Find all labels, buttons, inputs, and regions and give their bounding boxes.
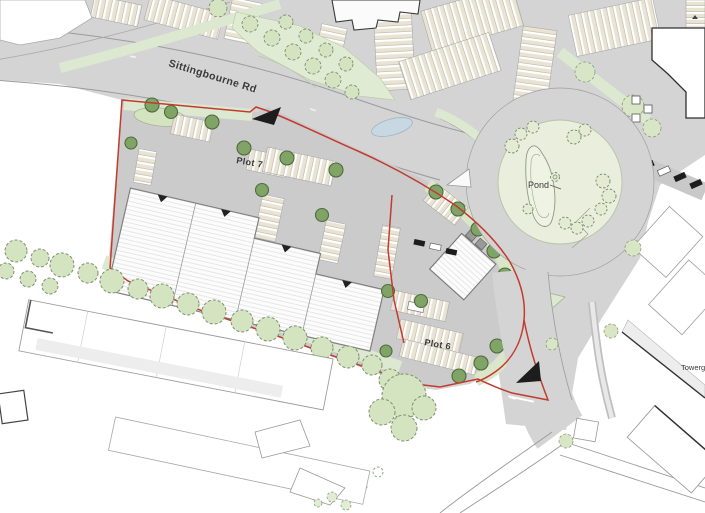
- tree-icon: [474, 356, 488, 370]
- tree-icon: [314, 499, 322, 507]
- tree-icon: [567, 130, 581, 144]
- tree-icon: [575, 62, 595, 82]
- tree-icon: [285, 44, 301, 60]
- pale-band: [622, 320, 705, 398]
- tree-icon: [604, 324, 618, 338]
- tree-icon: [20, 271, 36, 287]
- tree-icon: [329, 163, 343, 177]
- tree-icon: [369, 399, 395, 425]
- tree-icon: [559, 217, 571, 229]
- tree-icon: [391, 415, 417, 441]
- tree-icon: [523, 204, 533, 214]
- tree-icon: [237, 141, 251, 155]
- tree-icon: [515, 128, 527, 140]
- tree-icon: [264, 30, 280, 46]
- tree-icon: [5, 240, 27, 262]
- tree-icon: [177, 293, 199, 315]
- tree-icon: [299, 29, 313, 43]
- tree-icon: [202, 300, 226, 324]
- tree-icon: [0, 263, 14, 279]
- tree-icon: [602, 189, 616, 203]
- tree-icon: [256, 184, 269, 197]
- tree-icon: [579, 124, 591, 136]
- tree-icon: [339, 57, 353, 71]
- tree-icon: [125, 137, 137, 149]
- tree-icon: [527, 121, 539, 133]
- towergate-label: Towerga: [681, 363, 705, 372]
- tree-icon: [452, 369, 466, 383]
- tree-icon: [625, 240, 641, 256]
- tree-icon: [595, 203, 607, 215]
- tree-icon: [150, 284, 174, 308]
- tree-icon: [345, 85, 359, 99]
- tree-icon: [571, 222, 583, 234]
- site-plan-canvas: Sittingbourne Rd Plot 7 Plot 6 Pond Towe…: [0, 0, 705, 513]
- tree-icon: [42, 278, 58, 294]
- tree-icon: [362, 355, 382, 375]
- tree-icon: [325, 72, 341, 88]
- tree-icon: [412, 396, 436, 420]
- tree-icon: [316, 209, 329, 222]
- tree-icon: [31, 249, 49, 267]
- tree-icon: [319, 43, 333, 57]
- tree-icon: [546, 338, 558, 350]
- tree-icon: [305, 58, 321, 74]
- building-outline: [573, 418, 598, 442]
- tree-icon: [551, 173, 560, 182]
- tree-icon: [559, 434, 573, 448]
- tree-icon: [337, 346, 359, 368]
- tree-icon: [165, 106, 178, 119]
- tree-icon: [128, 279, 148, 299]
- tree-icon: [505, 139, 519, 153]
- site-plan: Sittingbourne Rd Plot 7 Plot 6 Pond Towe…: [0, 0, 705, 513]
- building-outline: [0, 390, 28, 423]
- tree-icon: [596, 174, 610, 188]
- building-outline: [649, 260, 705, 335]
- tree-icon: [415, 295, 428, 308]
- building-outline: [627, 406, 705, 493]
- tree-icon: [205, 115, 219, 129]
- tree-icon: [50, 253, 74, 277]
- building-outline: [255, 420, 310, 458]
- pond-label: Pond: [528, 180, 549, 190]
- tree-icon: [231, 310, 253, 332]
- tree-icon: [327, 492, 337, 502]
- tree-icon: [283, 326, 307, 350]
- tree-icon: [279, 15, 293, 29]
- tree-icon: [100, 269, 124, 293]
- tree-icon: [78, 263, 98, 283]
- tree-icon: [242, 16, 258, 32]
- tree-icon: [373, 467, 383, 477]
- tree-icon: [280, 151, 294, 165]
- tree-icon: [209, 0, 227, 17]
- tree-icon: [582, 215, 594, 227]
- tree-icon: [341, 500, 351, 510]
- tree-icon: [380, 345, 392, 357]
- tree-icon: [256, 317, 280, 341]
- tree-icon: [643, 119, 661, 137]
- tree-icon: [145, 98, 159, 112]
